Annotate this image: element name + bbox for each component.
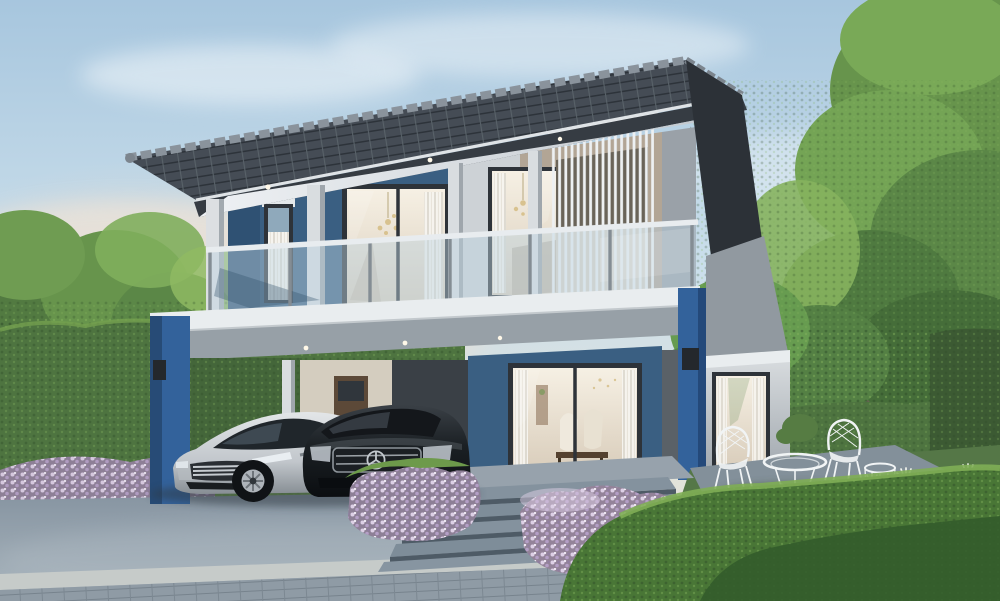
headlight-left: [176, 461, 188, 468]
corner-pillar-right: [678, 288, 706, 480]
extension-glass-door: [712, 372, 770, 472]
headlight-left: [310, 446, 331, 462]
flower-mound-left-of-steps: [345, 458, 481, 541]
headlight-right: [423, 445, 452, 460]
door-curtain-right: [622, 370, 636, 470]
main-glass-door: [508, 363, 642, 475]
armchair-2: [584, 409, 603, 449]
back-door-glazing: [338, 381, 364, 401]
house-exterior-rendering: [0, 0, 1000, 601]
wall-sconce-right: [682, 348, 699, 370]
ridge-end-cap: [125, 153, 135, 163]
wall-sconce-left: [153, 360, 166, 380]
coffee-table: [556, 452, 608, 458]
rendering-canvas: [0, 0, 1000, 601]
window-glass: [268, 208, 289, 232]
